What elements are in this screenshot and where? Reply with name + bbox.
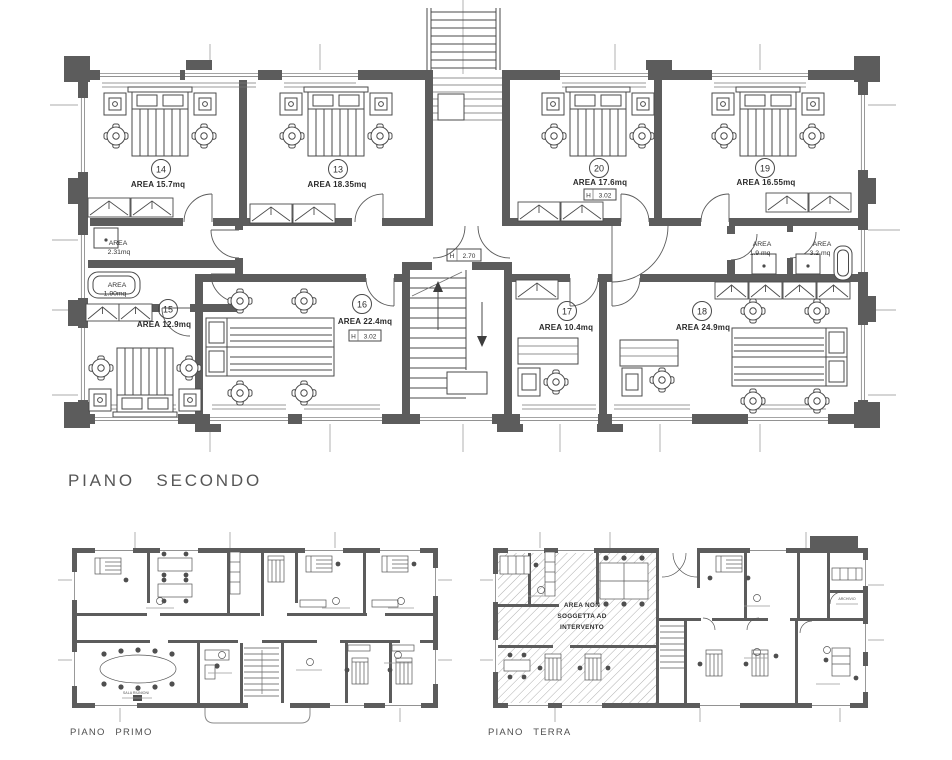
room-19: 19 AREA 16.55mq bbox=[712, 87, 851, 212]
floor-plan-secondo: 14 AREA 15.7mq 13 AREA 18.35mq 20 AREA 1… bbox=[50, 0, 900, 490]
archivio-label: ARCHIVIO bbox=[838, 597, 856, 601]
svg-text:2.70: 2.70 bbox=[463, 253, 476, 260]
floor-plan-sheet: 14 AREA 15.7mq 13 AREA 18.35mq 20 AREA 1… bbox=[0, 0, 952, 760]
room-13-area: AREA 18.35mq bbox=[307, 180, 366, 189]
svg-text:H: H bbox=[586, 193, 591, 200]
room-17: 17 AREA 10.4mq bbox=[516, 280, 593, 396]
room-19-number: 19 bbox=[760, 164, 770, 174]
room-13-number: 13 bbox=[333, 165, 343, 175]
svg-text:1.90mq: 1.90mq bbox=[104, 291, 127, 298]
room-16-height-box: H 3.02 bbox=[349, 330, 381, 341]
svg-text:AREA NON: AREA NON bbox=[564, 602, 600, 609]
room-20-number: 20 bbox=[594, 164, 604, 174]
entrance-vestibule bbox=[433, 78, 510, 258]
central-staircase bbox=[410, 270, 487, 398]
room-13: 13 AREA 18.35mq bbox=[250, 87, 392, 223]
room-20: 20 AREA 17.6mq H 3.02 bbox=[518, 87, 654, 221]
svg-text:INTERVENTO: INTERVENTO bbox=[560, 624, 604, 631]
floor-plan-primo: SALA RIUNIONI PIANO PRIMO bbox=[58, 532, 452, 738]
room-15: 15 AREA 12.9mq bbox=[86, 300, 201, 418]
bath-1-90: AREA 1.90mq bbox=[88, 272, 140, 298]
svg-text:3.02: 3.02 bbox=[364, 334, 377, 341]
svg-text:3.02: 3.02 bbox=[599, 193, 612, 200]
room-17-area: AREA 10.4mq bbox=[539, 323, 593, 332]
room-14: 14 AREA 15.7mq bbox=[88, 87, 216, 217]
sala-riunioni-label: SALA RIUNIONI bbox=[123, 691, 149, 695]
room-20-area: AREA 17.6mq bbox=[573, 178, 627, 187]
title-piano-primo: PIANO PRIMO bbox=[70, 727, 153, 738]
svg-text:H: H bbox=[450, 253, 455, 260]
exterior-stair bbox=[427, 0, 500, 74]
drawing-canvas: 14 AREA 15.7mq 13 AREA 18.35mq 20 AREA 1… bbox=[0, 0, 952, 760]
room-20-height-box: H 3.02 bbox=[584, 189, 616, 200]
room-19-area: AREA 16.55mq bbox=[736, 178, 795, 187]
room-14-number: 14 bbox=[156, 165, 166, 175]
room-16-number: 16 bbox=[357, 300, 367, 310]
svg-text:1.9 mq: 1.9 mq bbox=[750, 250, 771, 257]
svg-text:AREA: AREA bbox=[753, 241, 772, 248]
svg-text:AREA: AREA bbox=[108, 282, 127, 289]
terra-entrance-doors bbox=[662, 553, 697, 577]
room-17-number: 17 bbox=[562, 307, 572, 317]
room-18-area: AREA 24.9mq bbox=[676, 323, 730, 332]
title-piano-terra: PIANO TERRA bbox=[488, 727, 571, 738]
svg-text:3.2 mq: 3.2 mq bbox=[810, 250, 831, 257]
no-intervention-note: AREA NON SOGGETTA AD INTERVENTO bbox=[557, 602, 606, 631]
bath-2-31: AREA 2.31mq bbox=[94, 228, 131, 256]
svg-text:H: H bbox=[351, 334, 356, 341]
room-18-number: 18 bbox=[697, 307, 707, 317]
room-16: 16 AREA 22.4mq H 3.02 bbox=[206, 289, 392, 405]
room-15-area: AREA 12.9mq bbox=[137, 320, 191, 329]
room-15-number: 15 bbox=[163, 305, 173, 315]
title-piano-secondo: PIANO SECONDO bbox=[68, 471, 262, 490]
svg-text:2.31mq: 2.31mq bbox=[108, 249, 131, 256]
bath-1-9: AREA 1.9 mq bbox=[750, 241, 776, 274]
svg-text:AREA: AREA bbox=[109, 240, 128, 247]
room-16-area: AREA 22.4mq bbox=[338, 317, 392, 326]
svg-text:AREA: AREA bbox=[813, 241, 832, 248]
room-18: 18 AREA 24.9mq bbox=[620, 282, 850, 413]
svg-text:SOGGETTA AD: SOGGETTA AD bbox=[557, 613, 606, 620]
room-14-area: AREA 15.7mq bbox=[131, 180, 185, 189]
primo-room-markers bbox=[146, 598, 414, 674]
corridor-height-box: H 2.70 bbox=[447, 249, 481, 261]
primo-furniture bbox=[95, 552, 416, 701]
floor-plan-terra: AREA NON SOGGETTA AD INTERVENTO ARCHIVIO… bbox=[480, 532, 884, 738]
